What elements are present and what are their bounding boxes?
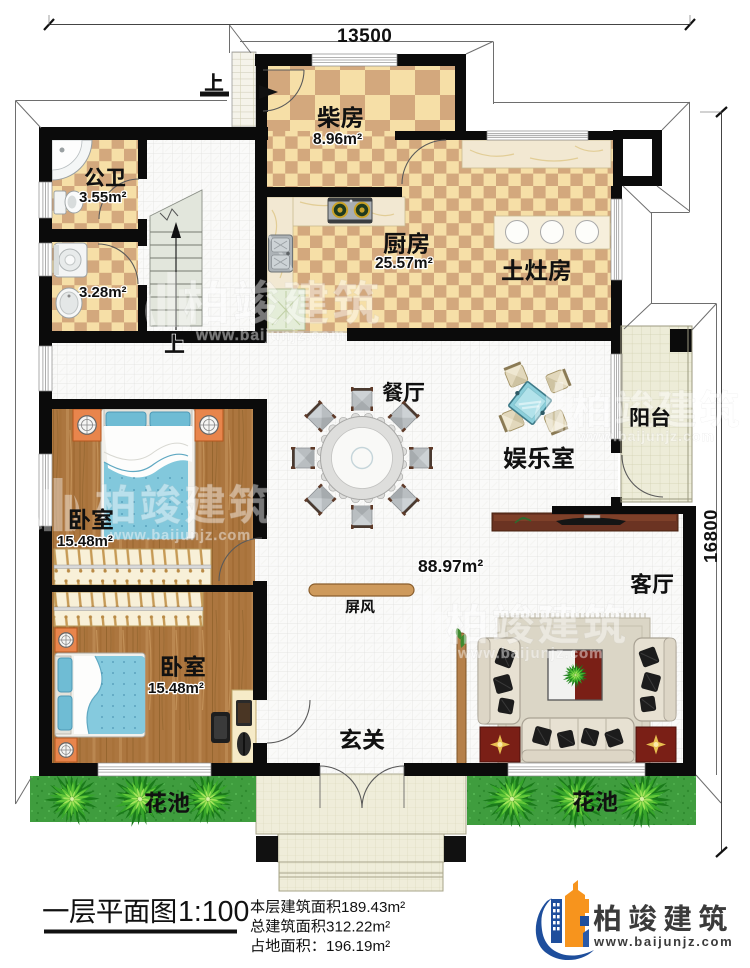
- svg-text:3.55m²: 3.55m²: [79, 189, 127, 206]
- svg-text:189.43m²: 189.43m²: [341, 899, 405, 916]
- svg-text:www.baijunjz.com: www.baijunjz.com: [593, 934, 733, 949]
- svg-text:312.22m²: 312.22m²: [326, 919, 390, 936]
- svg-text:15.48m²: 15.48m²: [57, 533, 113, 550]
- svg-text:15.48m²: 15.48m²: [148, 680, 204, 697]
- svg-text:www.baijunjz.com: www.baijunjz.com: [195, 327, 346, 344]
- svg-text:8.96m²: 8.96m²: [313, 131, 362, 148]
- svg-text:25.57m²: 25.57m²: [375, 255, 433, 272]
- svg-text:88.97m²: 88.97m²: [418, 556, 483, 576]
- svg-text:3.28m²: 3.28m²: [79, 284, 127, 301]
- svg-text:www.baijunjz.com: www.baijunjz.com: [577, 428, 715, 444]
- svg-text:www.baijunjz.com: www.baijunjz.com: [109, 528, 251, 544]
- svg-text:196.19m²: 196.19m²: [326, 938, 390, 955]
- svg-text:1:100: 1:100: [178, 896, 249, 928]
- svg-text:13500: 13500: [337, 26, 392, 47]
- svg-text:www.baijunjz.com: www.baijunjz.com: [457, 645, 603, 662]
- svg-text:16800: 16800: [700, 509, 721, 563]
